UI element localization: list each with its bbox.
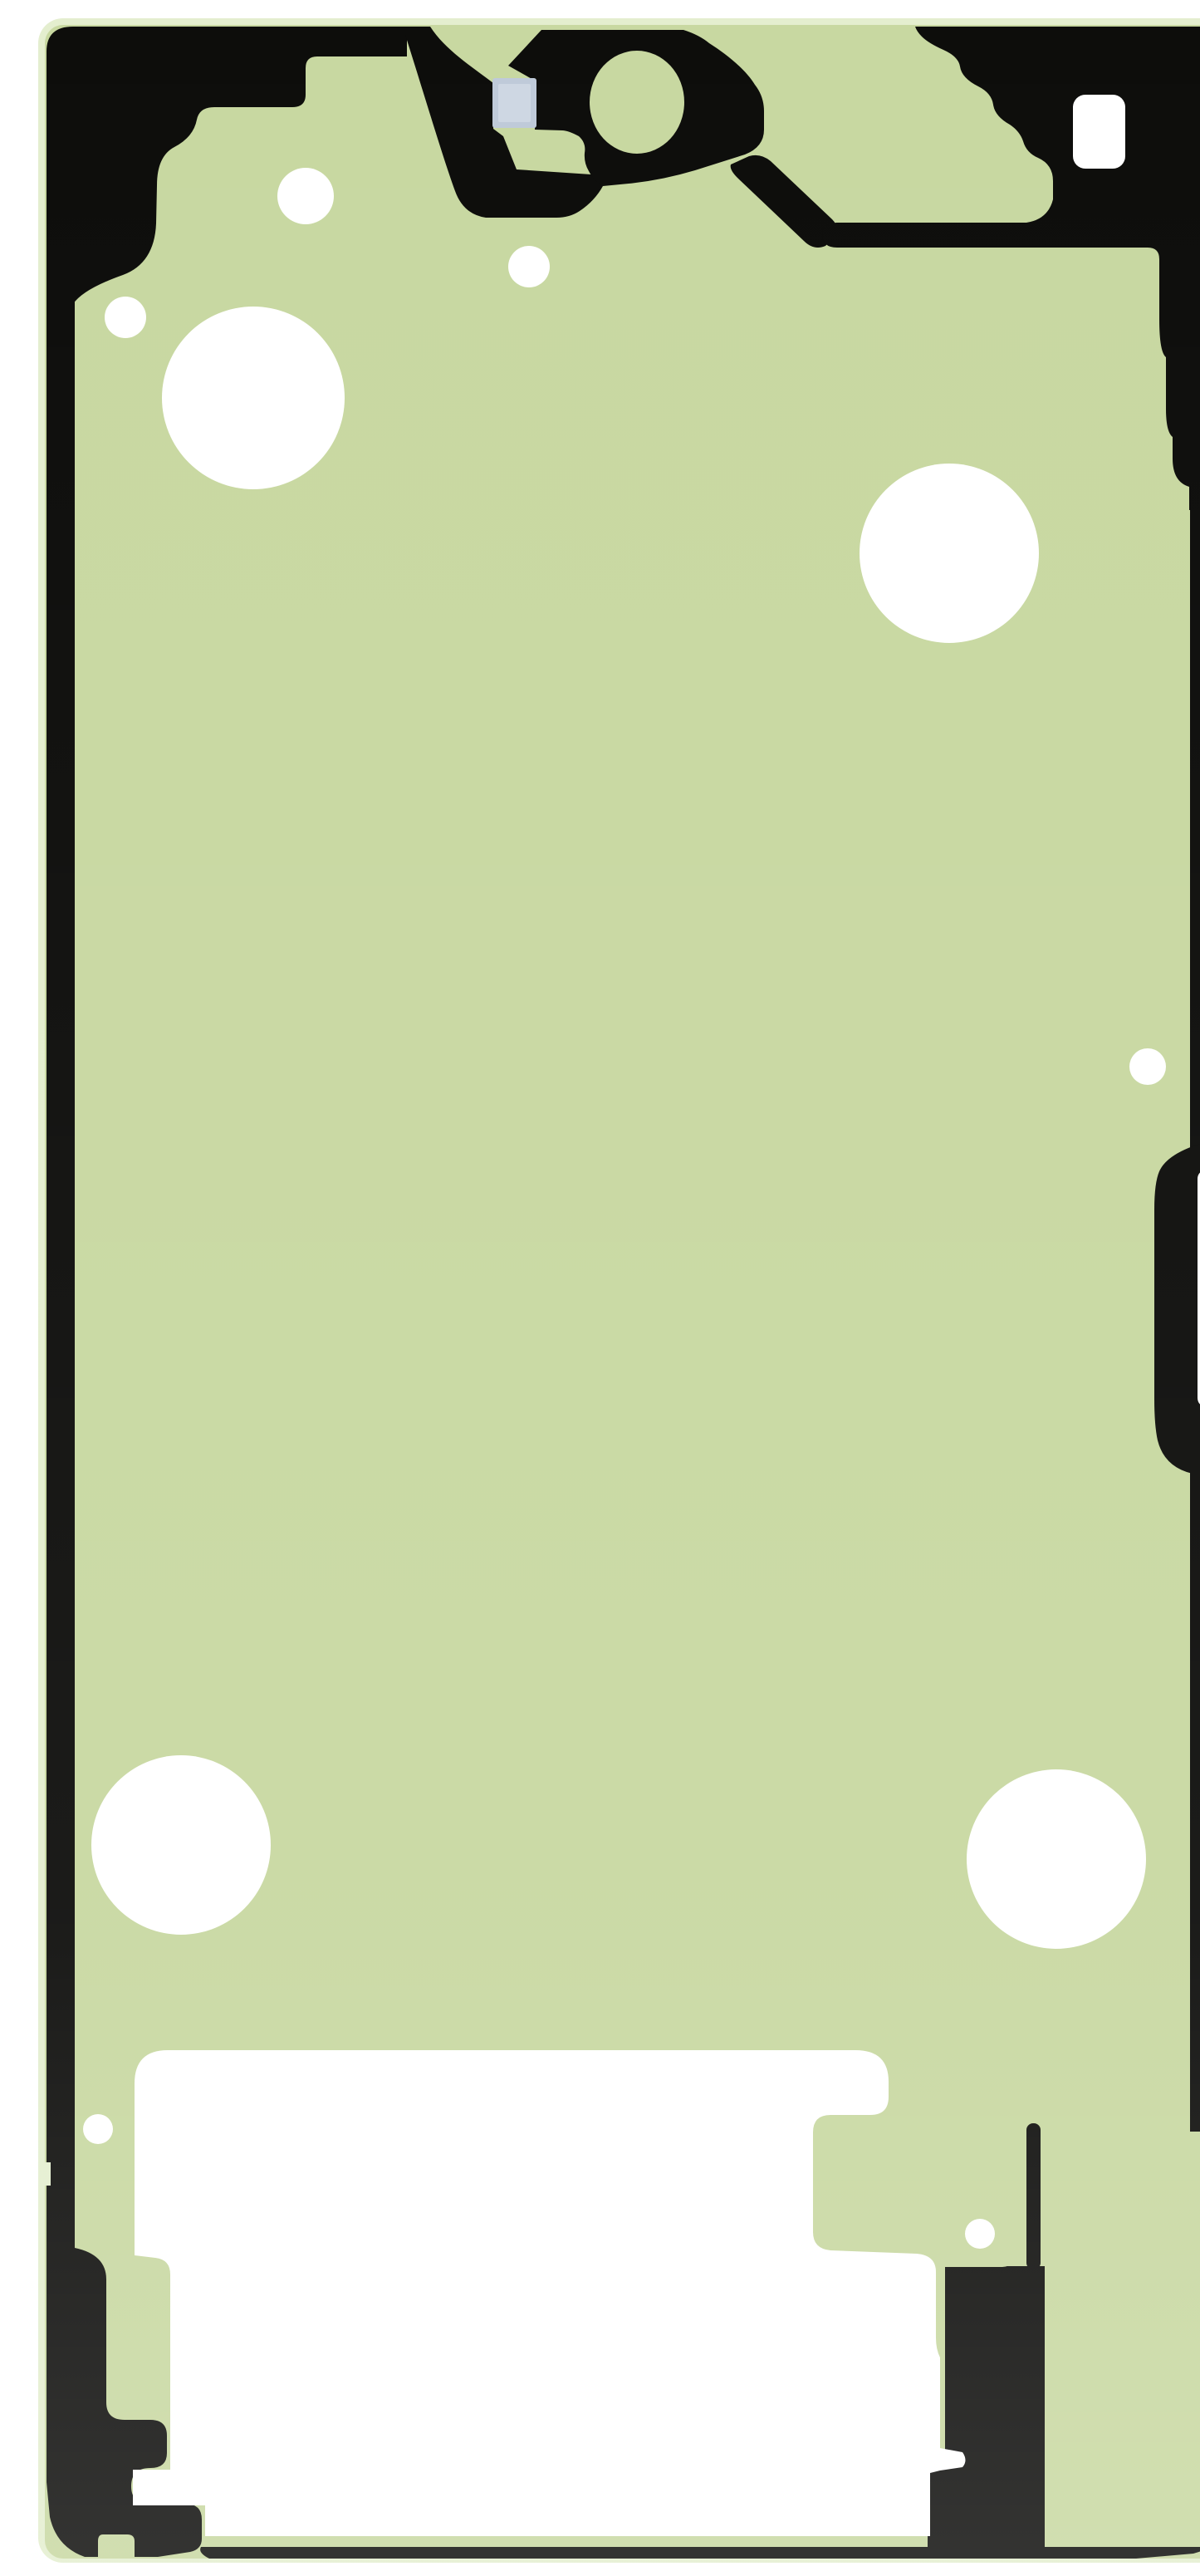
lighting-overlay	[38, 18, 1200, 2563]
product-photo: Product photograph of a green battery ba…	[33, 13, 1200, 2563]
adhesive-sticker-illustration	[33, 13, 1200, 2563]
